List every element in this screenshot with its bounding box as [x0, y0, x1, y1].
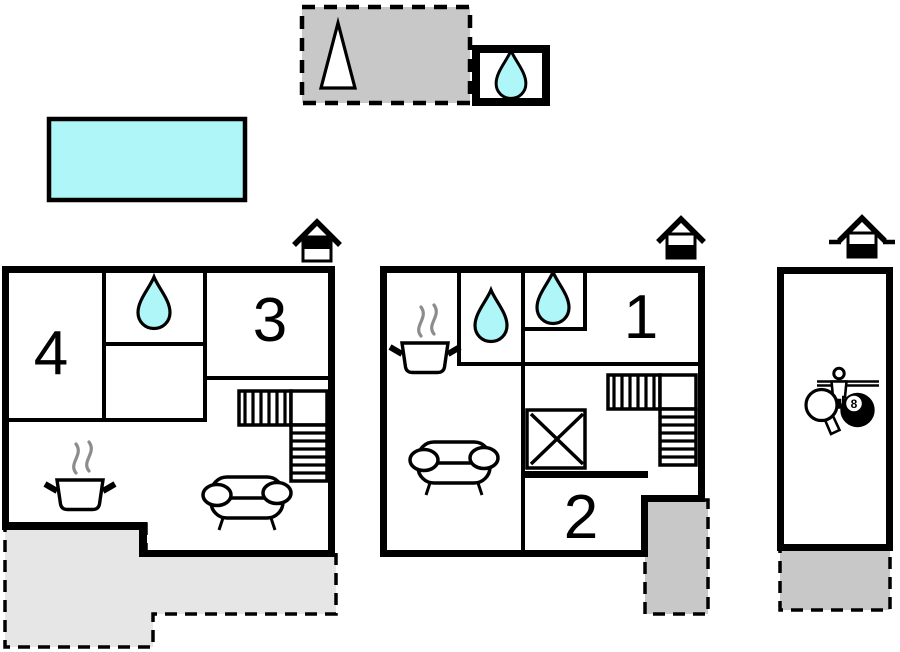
stove-icon	[45, 442, 115, 510]
house-upper-floor-icon	[294, 222, 340, 261]
terrace	[780, 547, 890, 610]
table-tennis-icon	[806, 390, 840, 435]
sofa-icon	[410, 442, 498, 495]
water-drop-icon	[138, 277, 170, 329]
upper-floor-plan: 4 3	[2, 222, 340, 647]
annex-plan: 8	[777, 218, 895, 610]
ground-floor-plan: 1 2	[380, 219, 708, 614]
annex-ground-floor-icon	[829, 218, 895, 257]
terrace	[5, 524, 336, 647]
house-ground-floor-icon	[658, 219, 704, 258]
bedroom-4-label: 4	[34, 319, 68, 388]
water-drop-icon	[537, 272, 569, 324]
stairs-icon	[239, 391, 327, 481]
stairs-icon	[608, 375, 696, 465]
swimming-pool	[49, 119, 245, 200]
sofa-icon	[203, 477, 291, 530]
utility-icon	[527, 410, 585, 468]
stove-icon	[390, 305, 460, 373]
billiard-ball-icon: 8	[840, 393, 874, 427]
floor-plan-image: 4 3 1 2	[0, 0, 900, 652]
bedroom-1-label: 1	[624, 283, 658, 352]
bedroom-3-label: 3	[253, 286, 287, 355]
garden-plot	[302, 7, 470, 103]
billiard-ball-number: 8	[851, 397, 858, 411]
floor-plan-svg: 4 3 1 2	[0, 0, 900, 652]
outbuilding-bathroom	[476, 49, 546, 102]
water-drop-icon	[475, 290, 507, 342]
bedroom-2-label: 2	[564, 483, 598, 552]
terrace	[645, 500, 708, 614]
